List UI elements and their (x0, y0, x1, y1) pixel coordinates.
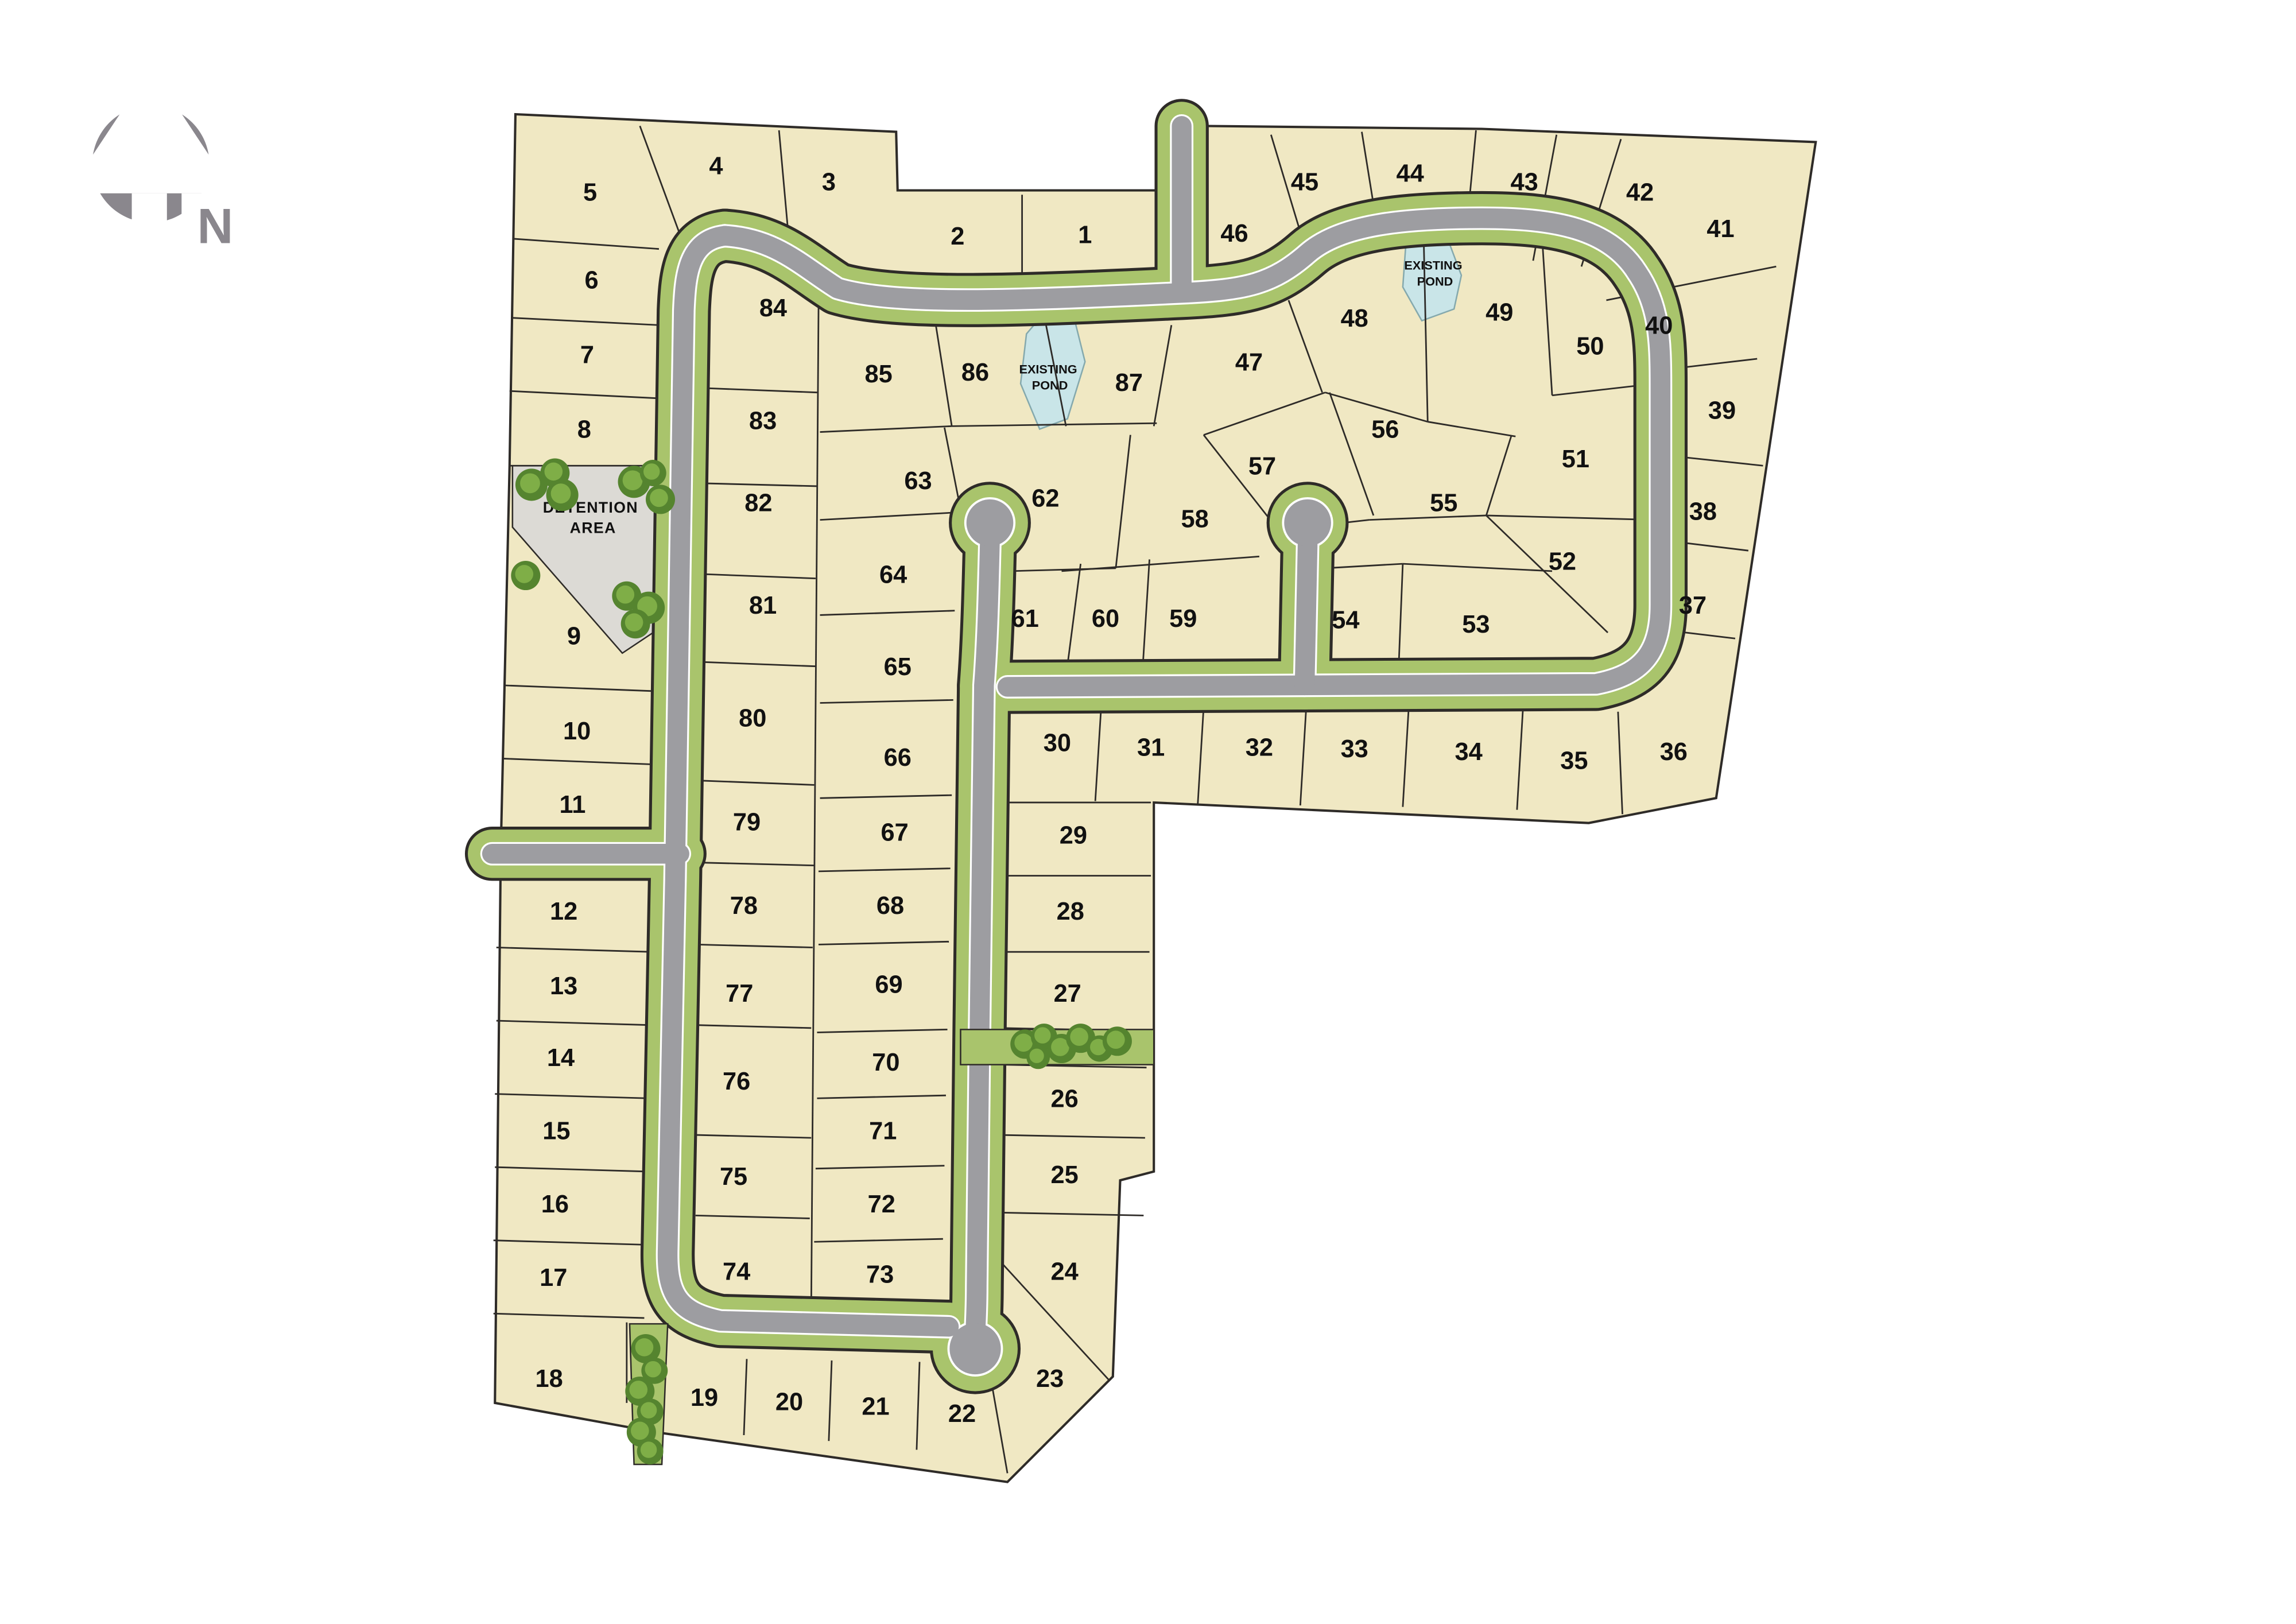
lot-number-78: 78 (730, 892, 758, 920)
tree-icon-highlight (631, 1422, 649, 1440)
tree-icon-highlight (1014, 1034, 1033, 1052)
lot-number-15: 15 (542, 1118, 570, 1145)
road-pavement (984, 542, 990, 685)
lot-number-12: 12 (550, 898, 577, 925)
lot-number-22: 22 (948, 1400, 976, 1428)
lot-number-10: 10 (563, 718, 591, 745)
lot-number-17: 17 (540, 1264, 567, 1292)
lot-number-50: 50 (1576, 332, 1604, 360)
road-pavement (1305, 545, 1308, 685)
lot-number-55: 55 (1430, 489, 1457, 517)
lot-number-60: 60 (1092, 605, 1119, 633)
lot-number-28: 28 (1057, 898, 1084, 925)
lot-number-39: 39 (1708, 397, 1736, 425)
subdivision-plat-map: DETENTION AREA EXISTING POND EXISTING PO… (0, 0, 2296, 1624)
lot-number-18: 18 (536, 1365, 563, 1393)
plat-map-page: DETENTION AREA EXISTING POND EXISTING PO… (0, 0, 2296, 1624)
lot-number-26: 26 (1050, 1086, 1078, 1113)
cul-de-sac-bulb (1284, 499, 1331, 546)
lot-number-81: 81 (749, 592, 777, 619)
lot-number-24: 24 (1050, 1258, 1078, 1286)
lot-number-37: 37 (1679, 592, 1707, 619)
lot-number-79: 79 (733, 808, 761, 836)
lot-number-38: 38 (1689, 498, 1717, 526)
tree-icon-highlight (544, 463, 563, 481)
lot-number-43: 43 (1510, 169, 1538, 196)
lot-number-20: 20 (775, 1389, 803, 1416)
lot-number-73: 73 (866, 1261, 894, 1289)
tree-icon-highlight (515, 565, 533, 583)
lot-number-72: 72 (868, 1191, 895, 1218)
lot-number-52: 52 (1549, 548, 1576, 575)
tree-icon-highlight (641, 1441, 657, 1458)
tree-icon-highlight (643, 463, 660, 479)
lot-number-31: 31 (1137, 734, 1165, 761)
lot-number-35: 35 (1560, 747, 1588, 774)
north-letter: N (197, 198, 234, 254)
road-pavement (975, 687, 984, 1344)
lot-number-66: 66 (884, 744, 912, 772)
lot-number-45: 45 (1291, 169, 1318, 196)
lot-number-65: 65 (884, 653, 912, 681)
lot-number-69: 69 (875, 971, 902, 999)
lot-number-4: 4 (709, 153, 723, 180)
lot-number-71: 71 (869, 1118, 897, 1145)
lot-number-75: 75 (720, 1163, 747, 1191)
lot-number-19: 19 (691, 1384, 718, 1412)
lot-number-42: 42 (1626, 179, 1654, 206)
lot-number-23: 23 (1036, 1365, 1064, 1393)
lot-number-61: 61 (1011, 605, 1039, 633)
lot-number-41: 41 (1707, 215, 1734, 243)
tree-icon-highlight (629, 1381, 647, 1399)
lot-number-25: 25 (1050, 1161, 1078, 1189)
lot-number-84: 84 (759, 294, 787, 322)
tree-icon-highlight (551, 483, 571, 503)
lot-number-33: 33 (1341, 735, 1368, 763)
lot-number-6: 6 (585, 267, 599, 294)
north-arrow-triangle (67, 67, 234, 193)
lot-number-32: 32 (1246, 734, 1273, 761)
lot-number-16: 16 (541, 1191, 569, 1218)
tree-icon-highlight (623, 470, 643, 490)
north-arrow-shaft (132, 193, 167, 274)
lot-number-83: 83 (749, 407, 777, 435)
tree-icon-highlight (650, 489, 668, 507)
lot-number-3: 3 (822, 169, 836, 196)
lot-number-51: 51 (1562, 445, 1589, 473)
lot-number-46: 46 (1220, 220, 1248, 247)
lot-number-44: 44 (1397, 160, 1424, 187)
lot-number-67: 67 (881, 819, 909, 846)
tree-icon-highlight (520, 473, 540, 493)
lot-number-34: 34 (1455, 738, 1483, 766)
north-arrow: N (67, 67, 249, 274)
tree-icon-highlight (1034, 1027, 1050, 1043)
tree-icon-highlight (1107, 1030, 1125, 1049)
tree-icon-highlight (641, 1402, 657, 1418)
lot-number-53: 53 (1462, 611, 1490, 638)
tree-icon-highlight (645, 1361, 661, 1377)
lot-number-11: 11 (560, 791, 586, 819)
lot-number-68: 68 (876, 892, 904, 920)
tree-icon-highlight (616, 586, 634, 604)
lot-number-70: 70 (872, 1049, 899, 1076)
lot-number-36: 36 (1660, 738, 1688, 766)
cul-de-sac-bulb (967, 499, 1014, 546)
lot-number-86: 86 (961, 359, 989, 386)
tree-icon-highlight (625, 613, 643, 631)
lot-number-8: 8 (577, 416, 591, 444)
lot-number-87: 87 (1115, 369, 1143, 397)
lot-number-62: 62 (1031, 485, 1059, 513)
lot-number-47: 47 (1235, 348, 1263, 376)
lot-number-29: 29 (1060, 821, 1087, 849)
lot-number-77: 77 (726, 980, 753, 1007)
tree-icon-highlight (1070, 1028, 1088, 1046)
lot-number-9: 9 (567, 622, 581, 650)
lot-number-13: 13 (550, 972, 577, 1000)
lot-number-59: 59 (1169, 605, 1197, 633)
lot-number-54: 54 (1332, 606, 1359, 634)
tree-icon-highlight (1029, 1049, 1044, 1063)
lot-number-14: 14 (547, 1044, 575, 1072)
lot-number-27: 27 (1054, 980, 1081, 1007)
lot-number-30: 30 (1044, 730, 1071, 757)
lot-number-80: 80 (739, 704, 766, 732)
lot-number-40: 40 (1645, 312, 1673, 340)
lot-number-7: 7 (580, 342, 594, 369)
lot-number-5: 5 (583, 179, 597, 206)
lot-number-85: 85 (864, 361, 892, 388)
lot-number-74: 74 (723, 1258, 750, 1286)
lot-number-58: 58 (1181, 505, 1209, 533)
lot-number-64: 64 (879, 561, 907, 588)
lot-number-2: 2 (951, 223, 964, 250)
lot-number-48: 48 (1341, 305, 1368, 332)
lot-number-76: 76 (723, 1068, 750, 1095)
lot-number-49: 49 (1486, 299, 1513, 327)
lot-number-82: 82 (744, 489, 772, 517)
lot-number-57: 57 (1248, 453, 1276, 480)
lot-number-63: 63 (904, 467, 932, 495)
lot-number-21: 21 (862, 1393, 889, 1420)
lot-number-56: 56 (1371, 416, 1399, 444)
cul-de-sac-bulb (949, 1323, 1000, 1374)
tree-icon-highlight (635, 1338, 654, 1356)
lot-number-1: 1 (1078, 221, 1092, 249)
